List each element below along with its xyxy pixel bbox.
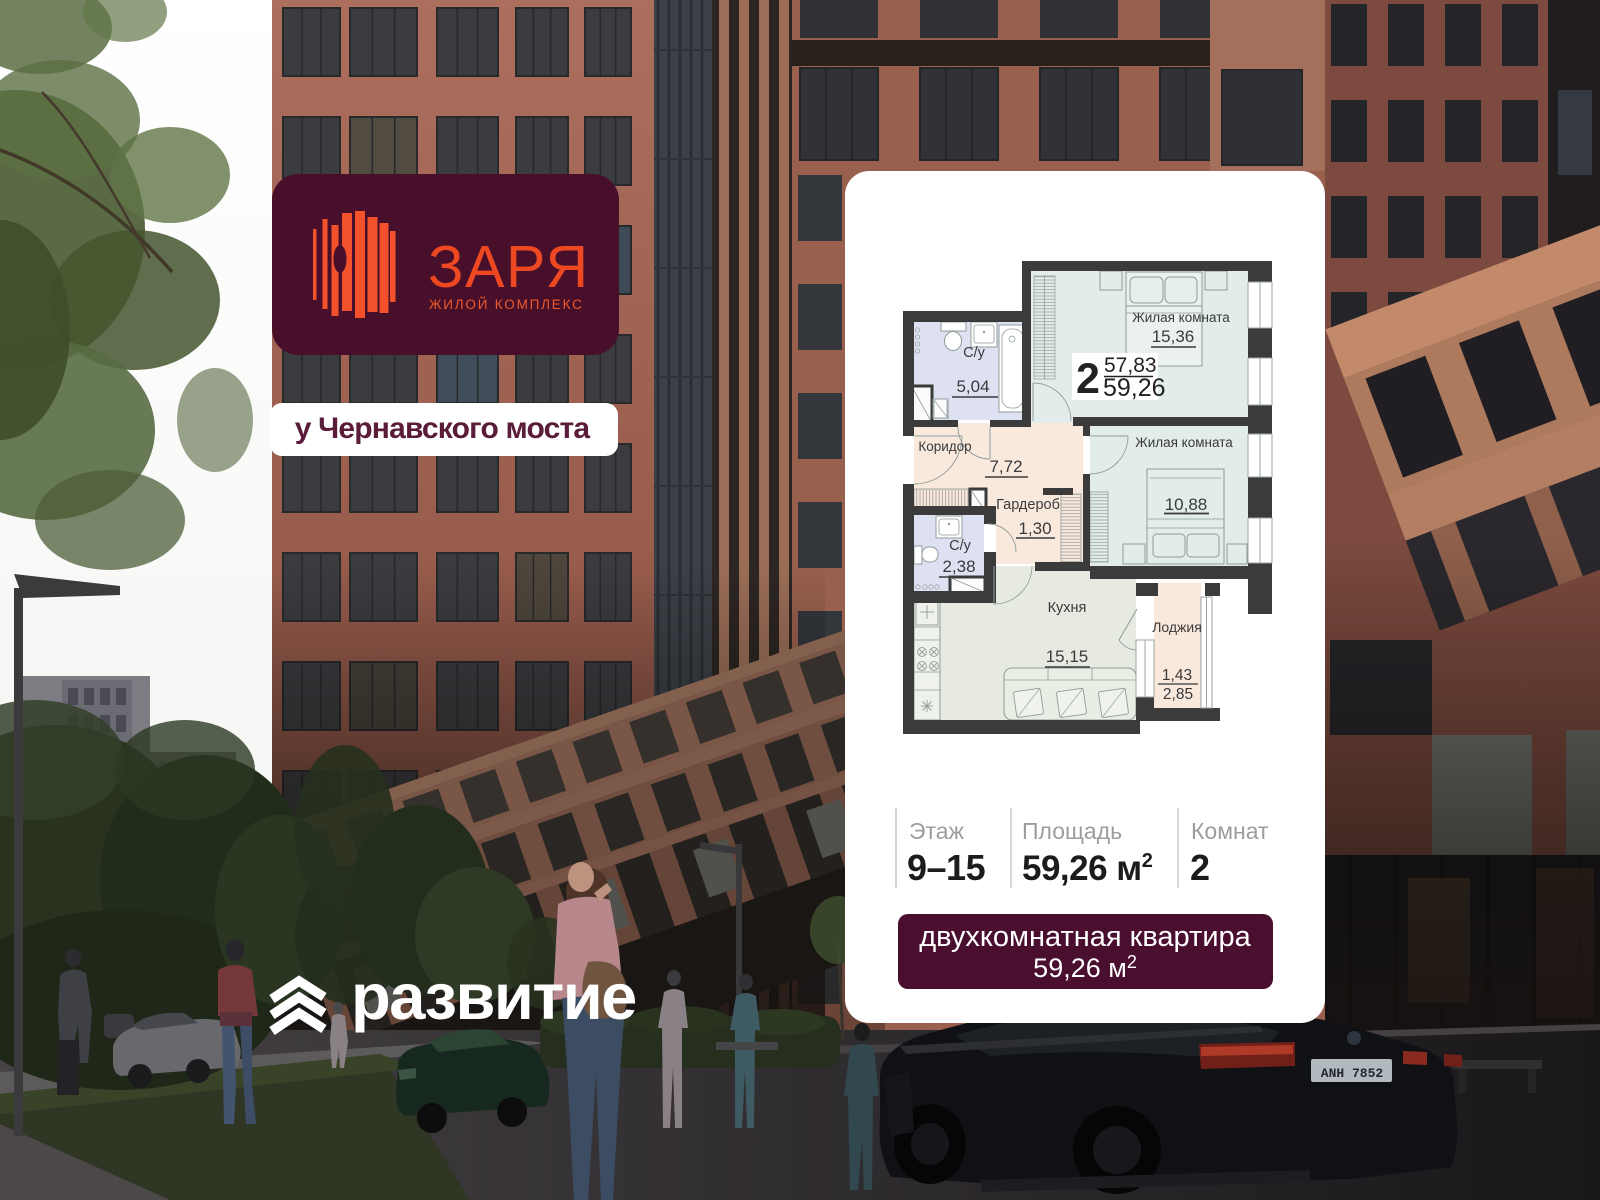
svg-text:2: 2 xyxy=(1190,847,1210,888)
svg-text:ANH 7852: ANH 7852 xyxy=(1321,1066,1384,1081)
svg-text:Кухня: Кухня xyxy=(1048,600,1087,616)
svg-text:15,15: 15,15 xyxy=(1046,647,1089,666)
svg-text:ЗАРЯ: ЗАРЯ xyxy=(428,234,590,300)
svg-text:59,26 м2: 59,26 м2 xyxy=(1033,952,1137,983)
svg-text:1,30: 1,30 xyxy=(1018,519,1051,538)
svg-text:10,88: 10,88 xyxy=(1165,495,1208,514)
svg-text:5,04: 5,04 xyxy=(956,377,989,396)
svg-text:Гардероб: Гардероб xyxy=(996,497,1060,513)
svg-text:Площадь: Площадь xyxy=(1022,818,1122,844)
svg-text:2,38: 2,38 xyxy=(942,557,975,576)
svg-text:2,85: 2,85 xyxy=(1163,686,1193,703)
svg-text:развитие: развитие xyxy=(351,960,636,1033)
svg-text:2: 2 xyxy=(1076,355,1100,403)
svg-text:9–15: 9–15 xyxy=(907,847,986,888)
svg-text:Жилая комната: Жилая комната xyxy=(1132,310,1230,325)
svg-text:15,36: 15,36 xyxy=(1152,327,1195,346)
svg-text:Жилая комната: Жилая комната xyxy=(1135,435,1233,450)
svg-text:С/у: С/у xyxy=(963,345,986,361)
svg-text:Коридор: Коридор xyxy=(918,439,971,454)
svg-text:Этаж: Этаж xyxy=(909,818,965,844)
svg-text:1,43: 1,43 xyxy=(1162,667,1192,684)
svg-text:Лоджия: Лоджия xyxy=(1152,619,1202,635)
svg-text:59,26 м2: 59,26 м2 xyxy=(1022,849,1153,888)
svg-text:59,26: 59,26 xyxy=(1103,374,1166,402)
svg-text:7,72: 7,72 xyxy=(989,457,1022,476)
svg-text:у Чернавского моста: у Чернавского моста xyxy=(295,412,591,445)
svg-text:ЖИЛОЙ КОМПЛЕКС: ЖИЛОЙ КОМПЛЕКС xyxy=(429,297,584,312)
svg-text:двухкомнатная квартира: двухкомнатная квартира xyxy=(919,921,1251,953)
svg-text:Комнат: Комнат xyxy=(1191,818,1269,844)
svg-text:С/у: С/у xyxy=(949,538,972,554)
